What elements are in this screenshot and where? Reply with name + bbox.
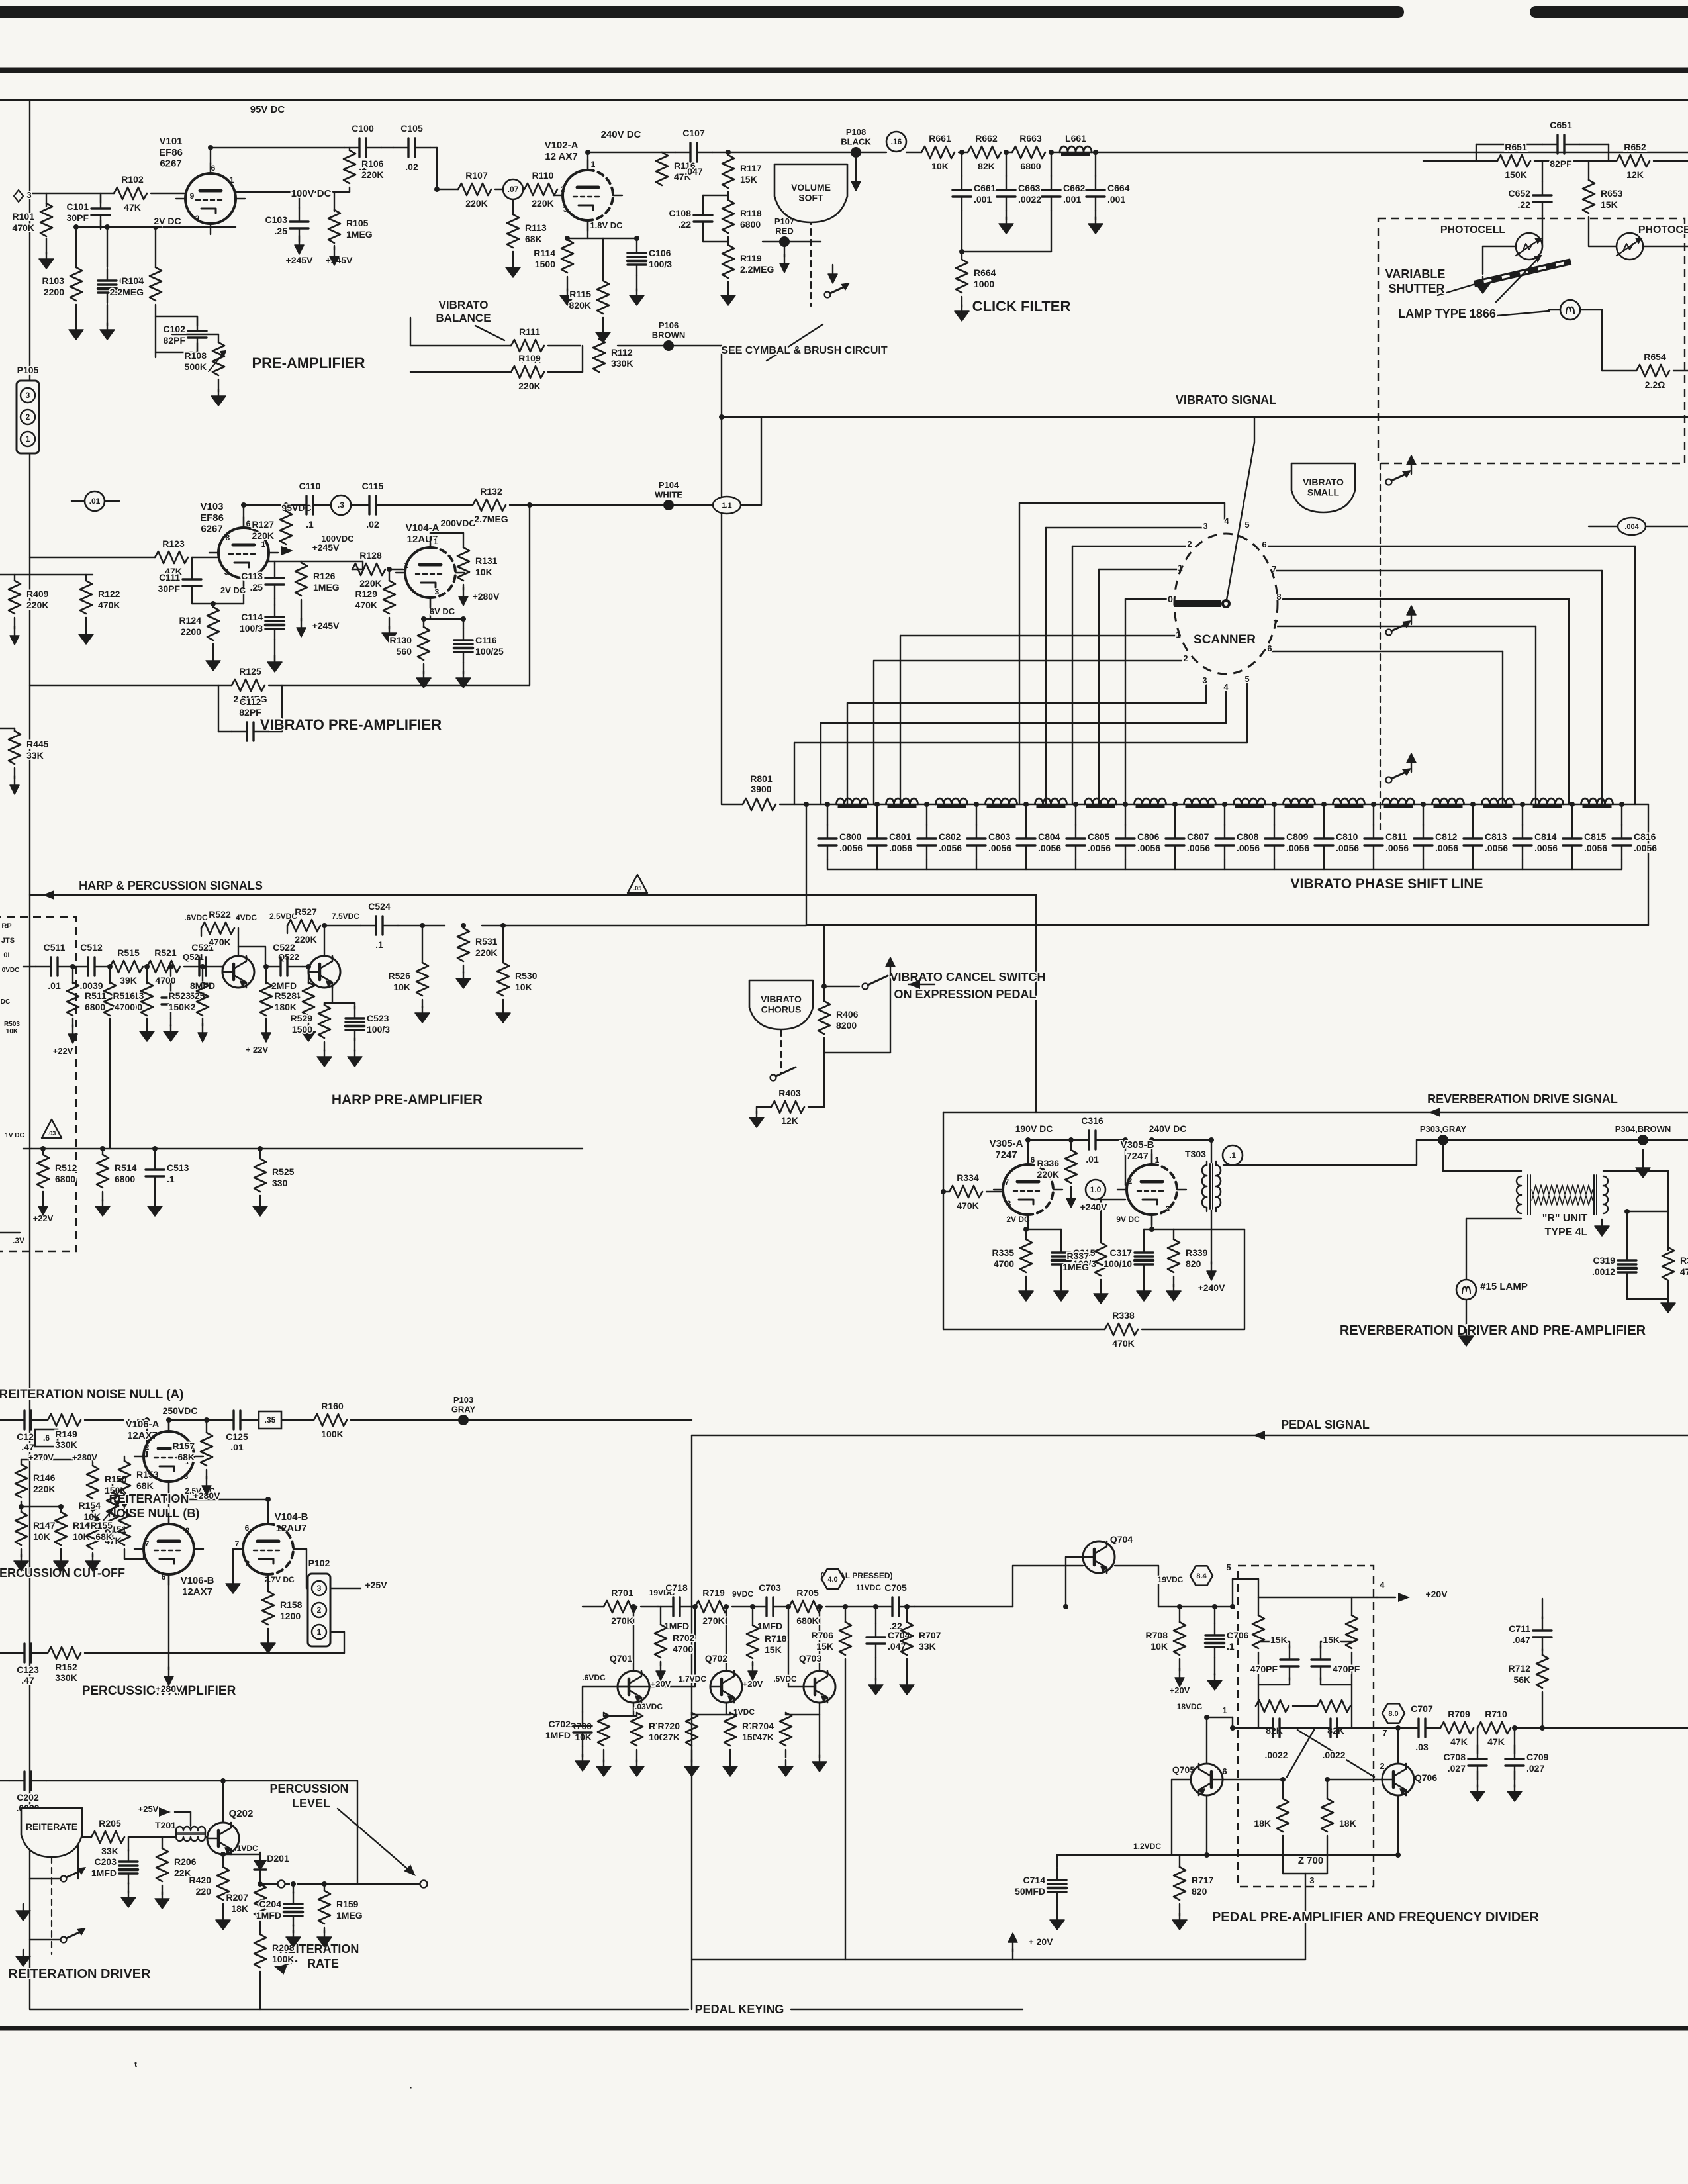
label: R334 bbox=[957, 1172, 979, 1183]
label: 7 bbox=[1382, 1728, 1387, 1738]
comp-rv-R712: R71256K bbox=[1509, 1655, 1548, 1688]
label: .6VDC bbox=[184, 913, 208, 922]
label: R207 bbox=[226, 1892, 249, 1903]
label: R653 bbox=[1601, 188, 1623, 199]
label: .0022 bbox=[1018, 194, 1041, 205]
label: R403 bbox=[778, 1088, 801, 1098]
comp-ad bbox=[780, 254, 789, 273]
label: 8.0 bbox=[1388, 1710, 1398, 1718]
label: 1500 bbox=[292, 1024, 312, 1035]
label: 220 bbox=[196, 1886, 212, 1897]
comp-rv-R105: R1051MEG bbox=[328, 210, 373, 243]
comp-rh-R719: R719270K bbox=[695, 1588, 728, 1626]
comp-gd bbox=[900, 1678, 914, 1695]
label: R530 bbox=[515, 971, 538, 981]
label: C702 bbox=[549, 1719, 571, 1729]
comp-rv-R115: R115820K bbox=[569, 281, 609, 314]
comp-cv-C813: C813.0056 bbox=[1464, 825, 1508, 859]
label: P304,BROWN bbox=[1615, 1124, 1671, 1134]
label: .0039 bbox=[79, 980, 103, 991]
label: R106 bbox=[361, 158, 384, 169]
comp-rh-R515: R51539K bbox=[110, 947, 143, 986]
label: .047 bbox=[1513, 1635, 1530, 1645]
label: PERCUSSION bbox=[269, 1782, 348, 1795]
label: 2V DC bbox=[220, 585, 246, 595]
label: C800 bbox=[839, 831, 862, 842]
label: .0056 bbox=[1534, 843, 1558, 853]
comp-tr bbox=[207, 1823, 239, 1854]
label: 2 bbox=[1183, 653, 1188, 663]
label: 18K bbox=[231, 1903, 248, 1914]
comp-rv-R158: R1581200 bbox=[262, 1591, 303, 1625]
label: R341 bbox=[1680, 1255, 1688, 1266]
comp-ih bbox=[986, 798, 1017, 808]
label: 82K bbox=[978, 161, 995, 171]
comp-cv-C802: C802.0056 bbox=[917, 825, 962, 859]
comp-ah bbox=[1398, 1593, 1410, 1602]
label: R205 bbox=[99, 1818, 121, 1828]
label: 68K bbox=[95, 1531, 113, 1542]
label: R126 bbox=[313, 571, 336, 581]
label: .001 bbox=[974, 194, 992, 205]
label: +245V bbox=[286, 255, 314, 265]
comp-rv-R707: R70733K bbox=[901, 1622, 941, 1655]
comp-rv-R516: R5164700 bbox=[113, 982, 153, 1016]
label: 330 bbox=[272, 1178, 288, 1188]
comp-ev-C104: C104100/3 bbox=[98, 269, 142, 303]
label: C511 bbox=[44, 942, 66, 953]
label: 10K bbox=[515, 982, 532, 992]
comp-gd bbox=[684, 1760, 699, 1776]
label: .3V bbox=[13, 1236, 24, 1245]
comp-rv-R526: R52610K bbox=[389, 963, 428, 996]
label: .0056 bbox=[1435, 843, 1458, 853]
label: R337 bbox=[1067, 1251, 1090, 1261]
comp-cv-C816: C816.0056 bbox=[1613, 825, 1657, 859]
label: C652 bbox=[1509, 188, 1531, 199]
label: .0022 bbox=[1322, 1750, 1345, 1760]
label: C812 bbox=[1435, 831, 1458, 842]
comp-cv-C811: C811.0056 bbox=[1364, 825, 1409, 859]
label: .3 bbox=[338, 500, 344, 510]
comp-ev-C706: C706.1 bbox=[1205, 1623, 1249, 1658]
label: R409 bbox=[26, 589, 49, 599]
comp-rh-R710: R71047K bbox=[1477, 1709, 1511, 1747]
comp-gd bbox=[1470, 1785, 1485, 1801]
label: 6800 bbox=[85, 1002, 105, 1012]
comp-gd bbox=[317, 1050, 332, 1067]
label: C815 bbox=[1584, 831, 1607, 842]
label: .47 bbox=[21, 1675, 34, 1685]
comp-gd bbox=[216, 1913, 230, 1930]
label: C108 bbox=[669, 208, 692, 218]
label: C102 bbox=[164, 324, 186, 334]
label: TYPE 4L bbox=[1545, 1227, 1588, 1238]
label: C317 bbox=[1110, 1247, 1133, 1258]
label: R154 bbox=[79, 1500, 101, 1511]
label: R157 bbox=[173, 1441, 195, 1451]
label: C110 bbox=[299, 481, 321, 491]
label: 560 bbox=[397, 646, 412, 657]
comp-rh-R338: R338470K bbox=[1105, 1310, 1138, 1349]
comp-gd bbox=[16, 1950, 30, 1966]
label: 470PF bbox=[1250, 1664, 1278, 1674]
label: C105 bbox=[400, 123, 423, 134]
label: D201 bbox=[267, 1853, 289, 1864]
comp-ad bbox=[295, 236, 304, 254]
comp-cv-C809: C809.0056 bbox=[1265, 825, 1309, 859]
label: 180K bbox=[275, 1002, 297, 1012]
label: T201 bbox=[155, 1820, 176, 1830]
label: V101EF866267 bbox=[159, 136, 183, 169]
comp-ad bbox=[1066, 1189, 1076, 1208]
label: C709 bbox=[1526, 1752, 1549, 1762]
label: 33K bbox=[101, 1846, 118, 1856]
label: 4 bbox=[1223, 682, 1229, 692]
label: 1V DC bbox=[5, 1132, 24, 1139]
label: REVERBERATION DRIVER AND PRE-AMPLIFIER bbox=[1340, 1323, 1646, 1338]
label: Q703 bbox=[799, 1653, 821, 1664]
label: 4700 bbox=[673, 1644, 693, 1654]
label: R661 bbox=[929, 133, 951, 144]
label: 15K bbox=[1323, 1635, 1340, 1645]
label: 150K bbox=[169, 1002, 191, 1012]
comp-rv-R664: R6641000 bbox=[956, 260, 996, 293]
label: · bbox=[410, 2082, 413, 2093]
comp-ev-C114: C114100/3 bbox=[240, 605, 284, 640]
label: R717 bbox=[1192, 1875, 1214, 1885]
label: 1000 bbox=[974, 279, 994, 289]
label: R662 bbox=[975, 133, 998, 144]
comp-gd bbox=[1207, 1674, 1222, 1690]
label: P102 bbox=[308, 1558, 330, 1568]
label: R206 bbox=[174, 1856, 197, 1867]
label: R107 bbox=[465, 170, 488, 181]
comp-cv-C804: C804.0056 bbox=[1017, 825, 1061, 859]
label: 100/3 bbox=[367, 1024, 390, 1035]
comp-cv-C812: C812.0056 bbox=[1414, 825, 1458, 859]
label: R712 bbox=[1509, 1663, 1531, 1674]
label: #15 LAMP bbox=[1480, 1281, 1528, 1292]
comp-bx-VIBRATO CHORUS: VIBRATOCHORUS bbox=[749, 980, 813, 1029]
comp-tr bbox=[710, 1671, 742, 1703]
comp-tb-.35: .35 bbox=[259, 1411, 281, 1429]
label: R131 bbox=[475, 555, 498, 566]
label: C107 bbox=[682, 128, 705, 138]
label: C804 bbox=[1038, 831, 1060, 842]
label: .03 bbox=[48, 1130, 56, 1137]
label: R50310K bbox=[4, 1021, 20, 1035]
comp-pv-R108: R108500K bbox=[185, 342, 226, 375]
label: V104-B12AU7 bbox=[275, 1511, 308, 1534]
label: C718 bbox=[665, 1582, 688, 1593]
label: C706 bbox=[1227, 1630, 1249, 1640]
label: R125 bbox=[239, 666, 261, 677]
label: R338 bbox=[1112, 1310, 1135, 1321]
label: R651 bbox=[1505, 142, 1527, 152]
label: 2 bbox=[317, 1605, 322, 1615]
label: 1MFD bbox=[256, 1910, 281, 1921]
label: 100/25 bbox=[475, 646, 504, 657]
comp-cv-C801: C801.0056 bbox=[868, 825, 912, 859]
comp-rv-R706: R70615K bbox=[812, 1622, 851, 1655]
comp-rv-R124: R1242200 bbox=[179, 607, 219, 640]
label: R128 bbox=[359, 550, 382, 561]
label: 100 bbox=[649, 1732, 665, 1742]
comp-gd bbox=[1166, 1284, 1181, 1301]
label: C806 bbox=[1137, 831, 1160, 842]
comp-gd bbox=[140, 1025, 154, 1041]
label: .03 bbox=[1415, 1742, 1429, 1752]
label: .1 bbox=[1227, 1641, 1235, 1652]
label: 95V DC bbox=[250, 104, 285, 115]
comp-gd bbox=[456, 972, 471, 988]
comp-rv-R146: R146220K bbox=[15, 1464, 56, 1497]
label: C204 bbox=[259, 1899, 282, 1909]
label: C100 bbox=[352, 123, 374, 134]
comp-ad bbox=[1207, 1262, 1216, 1280]
comp-cv-C711: C711.047 bbox=[1509, 1617, 1552, 1651]
label: 220K bbox=[359, 578, 381, 589]
label: R719 bbox=[702, 1588, 725, 1598]
label: 47K bbox=[1487, 1736, 1505, 1747]
comp-gd bbox=[596, 326, 610, 342]
label: VARIABLE bbox=[1385, 267, 1446, 281]
label: 250VDC bbox=[163, 1405, 198, 1416]
label: R111 bbox=[519, 326, 540, 337]
label: 220K bbox=[532, 198, 553, 209]
comp-tr bbox=[804, 1671, 835, 1703]
comp-dm bbox=[14, 190, 23, 202]
label: .47 bbox=[21, 1442, 34, 1452]
comp-swc bbox=[825, 283, 851, 298]
comp-ih bbox=[1284, 798, 1315, 808]
label: C125 bbox=[226, 1431, 248, 1442]
label: R801 bbox=[750, 773, 773, 784]
comp-cv-C810: C810.0056 bbox=[1315, 825, 1359, 859]
comp-rv-R514: R5146800 bbox=[97, 1155, 137, 1188]
comp-ih bbox=[1432, 798, 1464, 808]
label: 4 bbox=[1224, 516, 1229, 526]
label: R113 bbox=[525, 222, 547, 233]
label: R119 bbox=[740, 253, 762, 263]
label: 2V DC bbox=[1006, 1215, 1030, 1224]
comp-ih bbox=[936, 798, 968, 808]
label: 820K bbox=[569, 300, 591, 310]
comp-cv-C513: C513.1 bbox=[146, 1156, 189, 1190]
label: +240V bbox=[1198, 1282, 1226, 1293]
comp-rv-R127: R127220K bbox=[252, 511, 292, 544]
comp-gd bbox=[253, 1200, 267, 1216]
label: 330K bbox=[55, 1439, 77, 1450]
comp-ad bbox=[10, 776, 19, 794]
comp-rv-R159: R1591MEG bbox=[318, 1891, 363, 1924]
comp-ch-C316: C316.01 bbox=[1074, 1116, 1111, 1164]
comp-xfh bbox=[176, 1827, 205, 1841]
label: 1 bbox=[26, 434, 30, 444]
label: VIBRATO CANCEL SWITCH bbox=[890, 971, 1045, 984]
comp-rv-R708: R70810K bbox=[1146, 1622, 1186, 1655]
comp-gd bbox=[211, 389, 226, 406]
label: 330K bbox=[611, 358, 633, 369]
label: .0056 bbox=[839, 843, 863, 853]
label: R159 bbox=[336, 1899, 359, 1909]
label: 5 bbox=[1226, 1562, 1231, 1572]
label: R124 bbox=[179, 615, 202, 626]
label: C711 bbox=[1509, 1623, 1530, 1634]
label: +20V bbox=[1425, 1589, 1448, 1599]
comp-ev-C714: C71450MFD bbox=[1015, 1868, 1066, 1903]
label: 9V DC bbox=[1116, 1215, 1140, 1224]
label: 270K bbox=[702, 1615, 724, 1626]
label: 100/3 bbox=[240, 623, 263, 634]
label: V106-B12AX7 bbox=[181, 1575, 214, 1597]
label: VIBRATOCHORUS bbox=[761, 994, 802, 1015]
label: .0056 bbox=[1385, 843, 1409, 853]
label: LEVEL bbox=[292, 1797, 330, 1810]
label: 33K bbox=[919, 1641, 936, 1652]
comp-swc bbox=[61, 1867, 87, 1882]
comp-ev-C317: C317100/10 bbox=[1103, 1241, 1153, 1275]
label: 220K bbox=[1037, 1169, 1059, 1180]
comp-tu bbox=[134, 1513, 203, 1585]
comp-tp-.07: .07 bbox=[503, 179, 523, 199]
comp-rv: 18K bbox=[1254, 1799, 1289, 1832]
label: R122 bbox=[98, 589, 120, 599]
label: 330K bbox=[55, 1672, 77, 1683]
comp-gd bbox=[155, 1892, 169, 1909]
label: RP bbox=[1, 922, 11, 930]
comp-cv-C807: C807.0056 bbox=[1166, 825, 1210, 859]
label: C714 bbox=[1023, 1875, 1046, 1885]
label: 2200 bbox=[181, 626, 201, 637]
label: 3 bbox=[317, 1584, 322, 1593]
comp-lp bbox=[1456, 1280, 1476, 1300]
comp-rv-R341: R34147K bbox=[1662, 1247, 1688, 1280]
comp-rh-R652: R65212K bbox=[1617, 142, 1650, 180]
label: .001 bbox=[1107, 194, 1125, 205]
label: C703 bbox=[759, 1582, 781, 1593]
label: R118 bbox=[740, 208, 762, 218]
comp-ch-C512: C512.0039 bbox=[73, 942, 110, 991]
comp-gd bbox=[164, 1025, 178, 1041]
comp-cv-C103: C103.25 bbox=[265, 208, 308, 242]
comp-swc bbox=[61, 1928, 87, 1943]
label: 1200 bbox=[280, 1611, 301, 1621]
label: R523 bbox=[169, 990, 191, 1001]
label: C115 bbox=[362, 481, 384, 491]
label: 100/10 bbox=[1103, 1258, 1132, 1269]
label: R718 bbox=[765, 1633, 787, 1644]
label: R336 bbox=[1037, 1158, 1060, 1168]
label: R664 bbox=[974, 267, 996, 278]
label: 4700 bbox=[155, 975, 175, 986]
label: V305-A7247 bbox=[990, 1138, 1023, 1161]
label: REITERATE bbox=[26, 1821, 77, 1832]
label: 680K bbox=[796, 1615, 818, 1626]
comp-gd bbox=[496, 1006, 510, 1023]
label: 2.5VDC bbox=[269, 912, 297, 921]
label: t bbox=[134, 2060, 137, 2069]
label: .0056 bbox=[1137, 843, 1160, 853]
comp-rv-R104: R1042.2MEG bbox=[110, 267, 162, 301]
comp-bx-VIBRATO SMALL: VIBRATOSMALL bbox=[1291, 463, 1355, 512]
label: +25V bbox=[365, 1580, 387, 1590]
label: 68K bbox=[525, 234, 542, 244]
comp-gd bbox=[1019, 1284, 1033, 1301]
comp-cv-C806: C806.0056 bbox=[1116, 825, 1160, 859]
label: 220K bbox=[475, 947, 497, 958]
comp-ch-C524: C524.1 bbox=[361, 901, 398, 950]
label: C113 bbox=[241, 571, 263, 581]
comp-alh bbox=[42, 890, 54, 900]
label: 220K bbox=[361, 169, 383, 180]
label: .35 bbox=[265, 1415, 276, 1425]
label: VIBRATOSMALL bbox=[1303, 477, 1344, 498]
comp-gd bbox=[1088, 217, 1103, 234]
label: PRE-AMPLIFIER bbox=[252, 355, 365, 371]
comp-tp-.1: .1 bbox=[1223, 1145, 1243, 1165]
comp-alh bbox=[1429, 1108, 1440, 1117]
label: 15K bbox=[1270, 1635, 1288, 1645]
label: PHOTOCELL bbox=[1638, 224, 1688, 236]
label: .027 bbox=[1448, 1763, 1466, 1774]
comp-ad bbox=[851, 172, 861, 191]
label: 220K bbox=[518, 381, 540, 391]
label: 30PF bbox=[158, 583, 181, 594]
comp-rh-R107: R107220K bbox=[458, 170, 491, 209]
comp-gd bbox=[999, 217, 1013, 234]
comp-rv-R700: R70010K bbox=[570, 1713, 610, 1746]
label: R160 bbox=[321, 1401, 344, 1411]
label: 0 bbox=[1168, 594, 1173, 604]
label: 220K bbox=[33, 1484, 55, 1494]
label: PEDAL SIGNAL bbox=[1281, 1418, 1370, 1431]
comp-rh-R662: R66282K bbox=[968, 133, 1001, 171]
comp-tp-.01: .01 bbox=[85, 491, 105, 511]
comp-rh-R651: R651150K bbox=[1497, 142, 1530, 180]
label: R102 bbox=[121, 174, 144, 185]
label: R652 bbox=[1624, 142, 1646, 152]
comp-tb-.6: .6 bbox=[35, 1429, 58, 1447]
label: R155 bbox=[91, 1520, 113, 1531]
comp-ih bbox=[1184, 798, 1216, 808]
label: R527 bbox=[295, 906, 317, 917]
label: PEDAL KEYING bbox=[695, 2003, 784, 2016]
label: R146 bbox=[33, 1472, 56, 1483]
label: C708 bbox=[1444, 1752, 1466, 1762]
label: .01 bbox=[230, 1442, 244, 1452]
label: C523 bbox=[367, 1013, 389, 1023]
label: C803 bbox=[988, 831, 1011, 842]
label: 220K bbox=[26, 600, 48, 610]
label: .25 bbox=[250, 582, 263, 593]
label: 15K bbox=[1601, 199, 1618, 210]
label: Z 700 bbox=[1298, 1855, 1323, 1866]
comp-ah bbox=[281, 546, 293, 555]
comp-rv-R420: R420220 bbox=[189, 1867, 229, 1900]
label: .1 bbox=[375, 939, 383, 950]
comp-cv-C101: C10130PF bbox=[67, 195, 110, 229]
label: C810 bbox=[1336, 831, 1358, 842]
label: .1 bbox=[167, 1174, 175, 1184]
comp-tr bbox=[1083, 1541, 1115, 1573]
label: 100K bbox=[321, 1429, 343, 1439]
label: .01 bbox=[48, 980, 61, 991]
label: 3 bbox=[1166, 1204, 1170, 1213]
label: 270K bbox=[611, 1615, 633, 1626]
label: 2 bbox=[26, 412, 30, 422]
